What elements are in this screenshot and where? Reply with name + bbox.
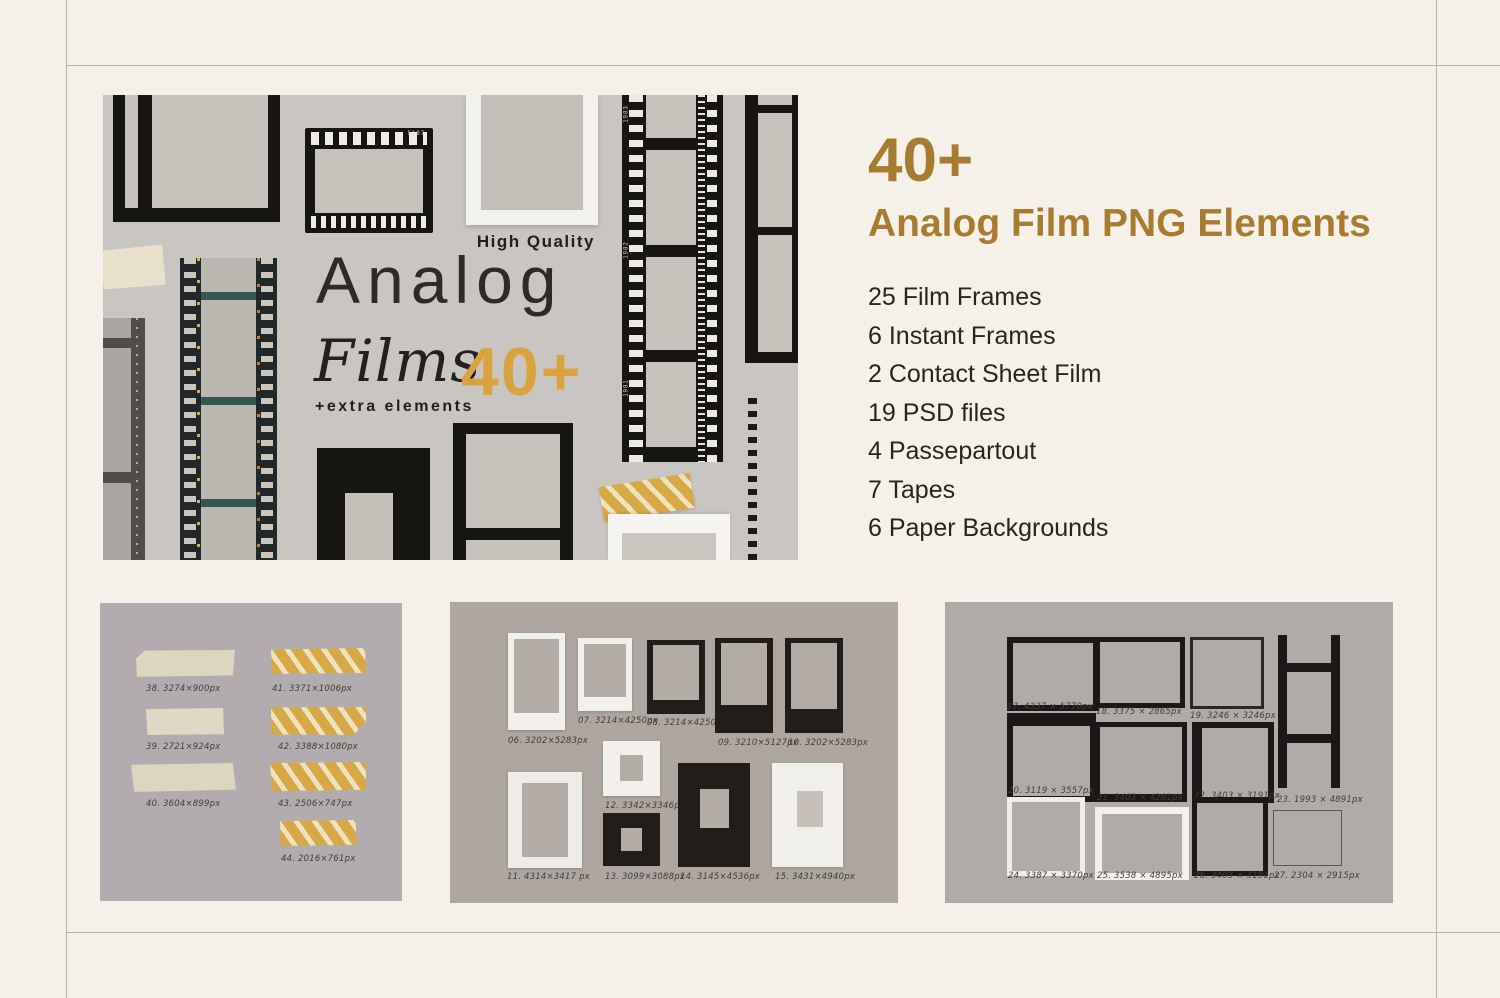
frame-label: 20. 3119 × 3557px [1008,786,1094,796]
passepartout-13 [603,813,660,866]
list-item: 7 Tapes [868,471,1108,510]
hero-badge-40plus: 40+ [461,338,582,406]
frame-label: 24. 3387 × 3370px [1008,871,1094,881]
hero-preview-image: 5187 1983 1982 1981 [103,95,798,560]
frame-label: 10. 3202×5283px [788,738,868,748]
masking-tape [103,244,166,289]
tape-label: 43. 2506×747px [278,799,352,809]
film-frame-topleft [113,95,280,222]
instant-frame-07 [578,638,632,711]
tape-label: 42. 3388×1080px [278,742,358,752]
hero-title: Analog [316,247,564,313]
frame-label: 14. 3145×4536px [680,872,760,882]
list-item: 2 Contact Sheet Film [868,355,1108,394]
tape-44 [280,820,357,846]
film-frame-27 [1273,810,1342,866]
black-passepartout [317,448,430,560]
tape-label: 44. 2016×761px [281,854,355,864]
film-frame-17 [1007,637,1099,711]
sprocket-film-frame: 5187 [305,128,433,233]
strip-year-label: 1983 [624,105,630,122]
perforation-strip [748,398,757,560]
tape-38 [136,650,235,677]
film-frame-18 [1095,637,1185,708]
hero-subtitle: +extra elements [315,398,474,416]
frame-label: 09. 3210×5127px [718,738,798,748]
film-frame-26 [1192,797,1268,876]
tape-41 [271,648,366,674]
film-frame-19 [1190,637,1264,709]
frame-label: 21. 3403 × 4281px [1097,793,1183,803]
tape-40 [131,763,236,792]
list-item: 4 Passepartout [868,432,1108,471]
rule-horizontal-bottom [66,932,1500,933]
tape-43 [270,762,366,791]
tape-42 [271,707,366,735]
frame-label: 17. 4337 × 5770px [1007,702,1093,712]
frame-label: 11. 4314×3417 px [507,872,590,882]
frame-label: 13. 3099×3088px [605,872,685,882]
rule-vertical-left [66,0,67,998]
page: { "hero": { "high_quality": "High Qualit… [0,0,1500,998]
film-code: 5187 [408,131,425,137]
contact-strip-dark [103,318,145,560]
list-item: 25 Film Frames [868,278,1108,317]
film-strip-23 [1278,635,1340,788]
film-frame-25 [1095,807,1189,880]
frame-label: 06. 3202×5283px [508,736,588,746]
panel-film-frames-preview: 17. 4337 × 5770px 18. 3375 × 2865px 19. … [945,602,1393,903]
frame-label: 15. 3431×4940px [775,872,855,882]
tape-label: 40. 3604×899px [146,799,220,809]
passepartout-14 [678,763,750,867]
panel-instant-frames-preview: 06. 3202×5283px 07. 3214×4250px 08. 3214… [450,602,898,903]
instant-frame-06 [508,633,565,730]
negative-strip-colour [180,258,277,560]
passepartout-15 [772,763,843,867]
list-item: 19 PSD files [868,394,1108,433]
strip-year-label: 1982 [624,241,630,258]
instant-frame-10 [785,638,843,733]
frame-label: 25. 3538 × 4895px [1097,871,1183,881]
white-sheet-frame [608,514,730,560]
info-count: 40+ [868,130,973,192]
tape-label: 39. 2721×924px [146,742,220,752]
film-frame-21 [1095,722,1187,802]
strip-year-label: 1981 [624,379,630,396]
info-heading: Analog Film PNG Elements [868,203,1371,246]
frame-label: 19. 3246 × 3246px [1190,711,1276,721]
instant-frame-08 [647,640,705,714]
tape-label: 38. 3274×900px [146,684,220,694]
white-frame-top [466,95,598,225]
list-item: 6 Instant Frames [868,317,1108,356]
frame-label: 12. 3342×3346px [605,801,685,811]
tape-label: 41. 3371×1006px [272,684,352,694]
film-strip-35mm: 1983 1982 1981 [622,95,723,462]
tape-39 [146,708,224,735]
frame-label: 27. 2304 × 2915px [1274,871,1360,881]
film-frame-bottom [453,423,573,560]
passepartout-12 [603,741,660,796]
frame-label: 18. 3375 × 2865px [1096,707,1182,717]
frame-label: 23. 1993 × 4891px [1277,795,1363,805]
list-item: 6 Paper Backgrounds [868,509,1108,548]
film-frame-24 [1007,797,1085,876]
hero-title-serif: Films [314,332,481,390]
rule-horizontal-top [66,65,1500,66]
instant-frame-09 [715,638,773,733]
passepartout-11 [508,772,582,868]
panel-tapes-preview: 38. 3274×900px 39. 2721×924px 40. 3604×8… [100,603,402,901]
frame-label: 26. 3403 × 3191px [1194,871,1280,881]
rule-vertical-right [1436,0,1437,998]
film-strip-right-edge [745,95,798,363]
info-list: 25 Film Frames 6 Instant Frames 2 Contac… [868,278,1108,548]
